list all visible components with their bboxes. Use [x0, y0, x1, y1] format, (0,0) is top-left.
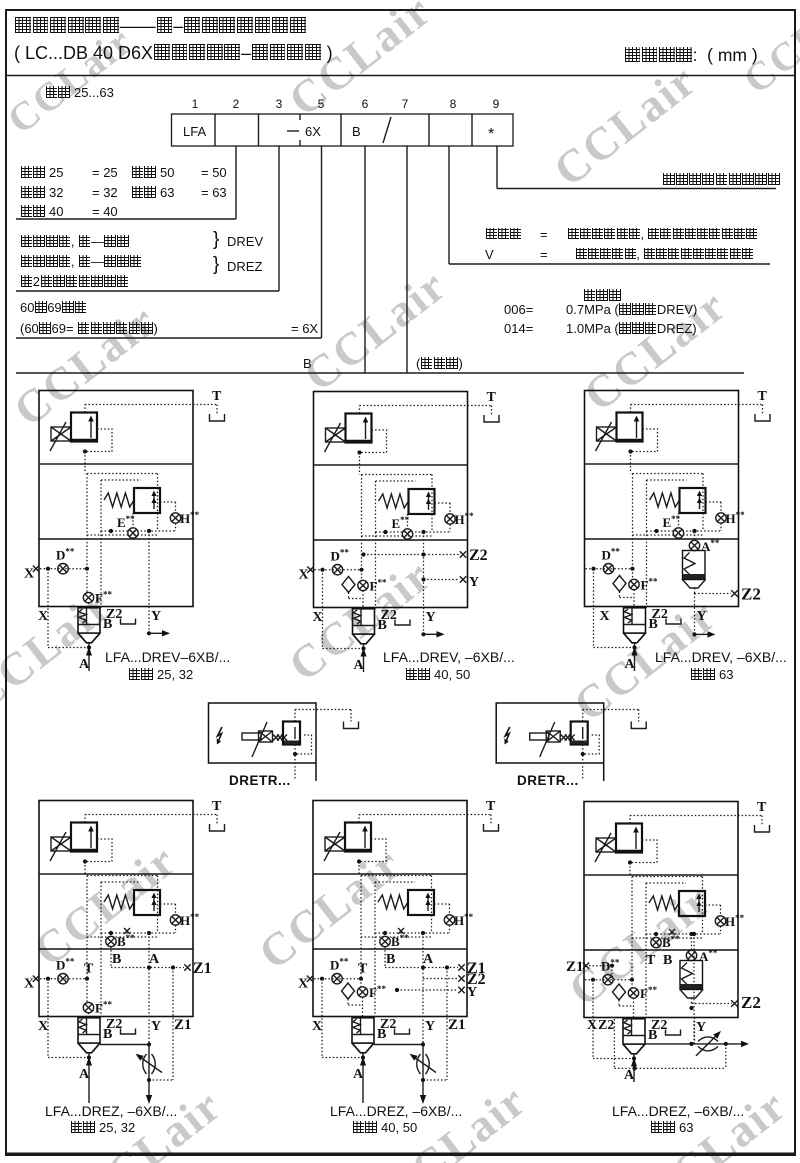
svg-text:Z1: Z1 [566, 959, 584, 975]
svg-text:X: X [24, 977, 34, 992]
svg-text:6: 6 [362, 97, 369, 111]
svg-text:T: T [757, 800, 767, 815]
svg-text:T: T [486, 799, 496, 814]
svg-text:A: A [625, 657, 636, 672]
svg-text:7: 7 [402, 97, 409, 111]
svg-text:F**: F** [95, 1000, 112, 1016]
svg-text:B: B [386, 952, 395, 967]
svg-text:Y: Y [151, 609, 161, 624]
svg-text:T: T [487, 390, 497, 405]
svg-text:8: 8 [450, 97, 457, 111]
svg-text:F**: F** [369, 984, 386, 1000]
svg-text:X: X [299, 568, 309, 583]
svg-text:F**: F** [641, 577, 658, 593]
svg-text:X: X [298, 977, 308, 992]
svg-text:A: A [353, 1067, 364, 1082]
svg-text:H**: H** [180, 912, 200, 928]
svg-text:X: X [38, 609, 48, 624]
svg-text:H**: H** [725, 913, 745, 929]
svg-text:F**: F** [95, 590, 112, 606]
svg-text:B**: B** [391, 933, 409, 949]
svg-text:H**: H** [455, 511, 475, 527]
svg-text:X: X [600, 609, 610, 624]
svg-text:Z2: Z2 [741, 993, 761, 1012]
svg-text:H**: H** [726, 510, 746, 526]
svg-text:Y: Y [426, 610, 436, 625]
svg-text:1: 1 [192, 97, 199, 111]
svg-text:T: T [212, 389, 222, 404]
svg-text:B: B [663, 953, 672, 968]
svg-text:B**: B** [662, 934, 680, 950]
svg-text:Y: Y [469, 575, 479, 590]
svg-text:H**: H** [454, 912, 474, 928]
svg-text:2: 2 [233, 97, 240, 111]
svg-text:T: T [84, 962, 94, 977]
svg-text:A: A [354, 658, 365, 673]
svg-text:T: T [212, 799, 222, 814]
svg-text:D**: D** [331, 548, 350, 564]
svg-text:D**: D** [601, 958, 620, 974]
svg-text:Y: Y [425, 1019, 435, 1034]
svg-text:A: A [79, 657, 90, 672]
svg-text:X: X [313, 610, 323, 625]
svg-text:A: A [79, 1067, 90, 1082]
svg-text:Z2: Z2 [469, 547, 488, 564]
svg-text:A**: A** [701, 538, 720, 554]
svg-text:X: X [587, 1018, 597, 1033]
svg-text:Z1: Z1 [174, 1017, 192, 1033]
svg-text:A: A [423, 952, 434, 967]
svg-text:H**: H** [180, 510, 200, 526]
svg-text:D**: D** [56, 957, 75, 973]
svg-text:LFA: LFA [183, 124, 206, 139]
svg-text:*: * [488, 126, 494, 143]
svg-text:D**: D** [330, 957, 349, 973]
svg-text:A: A [149, 952, 160, 967]
svg-text:X: X [312, 1019, 322, 1034]
svg-text:X: X [24, 567, 34, 582]
svg-text:B**: B** [117, 933, 135, 949]
svg-text:Z1: Z1 [448, 1017, 466, 1033]
svg-text:6X: 6X [305, 124, 321, 139]
svg-text:T: T [758, 389, 768, 404]
svg-text:Y: Y [467, 985, 477, 1000]
svg-text:F**: F** [640, 985, 657, 1001]
svg-text:X: X [38, 1019, 48, 1034]
svg-text:B: B [352, 124, 361, 139]
svg-text:3: 3 [276, 97, 283, 111]
svg-text:Z2: Z2 [598, 1018, 614, 1033]
svg-text:Y: Y [697, 609, 707, 624]
svg-text:A: A [624, 1068, 635, 1083]
svg-text:B: B [112, 952, 121, 967]
svg-text:Z1: Z1 [193, 960, 212, 977]
svg-text:5: 5 [318, 97, 325, 111]
svg-text:Y: Y [151, 1019, 161, 1034]
svg-text:D**: D** [602, 547, 621, 563]
svg-text:Y: Y [696, 1020, 706, 1035]
svg-text:Z2: Z2 [741, 585, 761, 604]
svg-text:D**: D** [56, 547, 75, 563]
svg-text:T: T [358, 962, 368, 977]
svg-text:F**: F** [370, 578, 387, 594]
svg-text:T: T [646, 953, 656, 968]
svg-text:9: 9 [493, 97, 500, 111]
